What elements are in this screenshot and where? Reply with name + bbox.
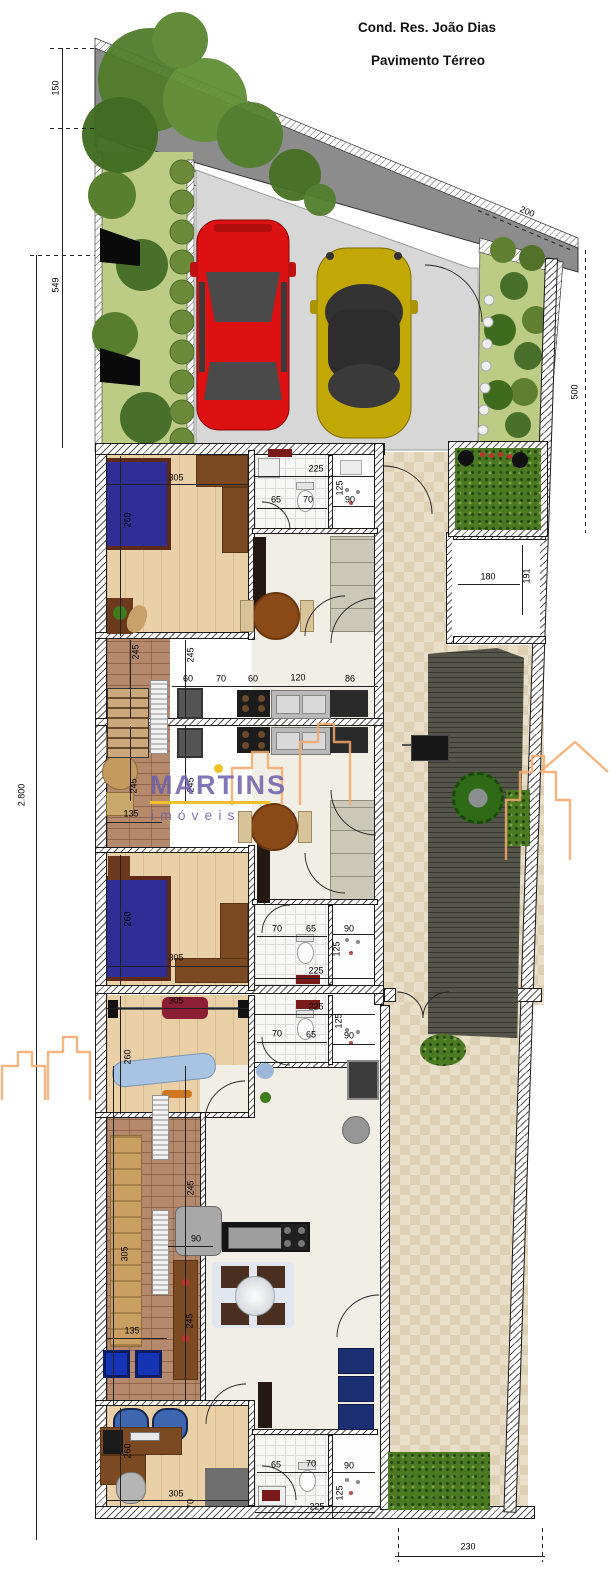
patio-a-screen xyxy=(150,680,168,754)
dimension-label: 135 xyxy=(124,1327,139,1336)
garden-table xyxy=(452,772,504,824)
watermark-brand: MARTINS xyxy=(150,772,287,799)
office-wall-right xyxy=(248,1400,255,1506)
dimension-label: 225 xyxy=(308,1003,323,1012)
service-a-fittings xyxy=(345,488,349,492)
watermark-underline xyxy=(150,801,270,804)
watermark-tagline: imóveis xyxy=(151,808,240,822)
planter-post-right xyxy=(512,452,528,468)
dimension-label: 180 xyxy=(480,573,495,582)
grill xyxy=(411,735,449,761)
dimension-label: 125 xyxy=(335,1013,344,1028)
kitchen-c-fridge xyxy=(175,1206,222,1256)
office-monitor xyxy=(130,1432,160,1441)
dim-line xyxy=(332,1462,333,1518)
bathroom-b-mat xyxy=(296,975,320,984)
dimension-label: 65 xyxy=(306,1031,316,1040)
dimension-label: 60 xyxy=(248,675,258,684)
dimension-label: 90 xyxy=(191,1235,201,1244)
dimension-label: 60 xyxy=(183,675,193,684)
planter-flowers xyxy=(480,452,485,457)
dim-line xyxy=(107,484,248,485)
dimension-label: 549 xyxy=(52,277,61,292)
kitchen-a-sink xyxy=(271,690,331,719)
dim-line xyxy=(458,584,520,585)
living-c-side-table xyxy=(342,1116,370,1144)
kitchen-a-stove xyxy=(237,690,270,717)
dim-line xyxy=(50,48,95,49)
bedroom-b-wall-right xyxy=(248,845,255,991)
dimension-label: 245 xyxy=(187,647,196,662)
dimension-label: 245 xyxy=(130,778,139,793)
dimension-label: 70 xyxy=(187,1499,196,1509)
dimension-label: 90 xyxy=(345,496,355,505)
bedroom-a-bed xyxy=(103,458,171,550)
kitchen-b-counter xyxy=(330,727,368,753)
patio-c-long-table xyxy=(110,1135,142,1347)
dim-line xyxy=(255,1512,375,1513)
bedroom-b-wall-top xyxy=(95,847,255,853)
inner-wall-right-lower xyxy=(380,1005,390,1510)
dimension-label: 90 xyxy=(344,1032,354,1041)
dim-line xyxy=(172,686,378,687)
dimension-label: 90 xyxy=(344,925,354,934)
dimension-label: 225 xyxy=(308,465,323,474)
dim-line xyxy=(120,996,121,1114)
dimension-label: 65 xyxy=(271,496,281,505)
dim-line xyxy=(332,1000,333,1062)
dim-line xyxy=(168,1246,213,1247)
dim-line xyxy=(120,1408,121,1508)
kitchen-b-sink xyxy=(271,727,331,755)
dimension-label: 230 xyxy=(460,1543,475,1552)
dim-line xyxy=(255,476,375,477)
sofa-c-module1 xyxy=(338,1348,374,1374)
service-b-fittings xyxy=(345,938,349,942)
dim-line xyxy=(395,1556,545,1557)
patio-c-chair1 xyxy=(103,1350,130,1378)
dim-line xyxy=(542,1528,543,1562)
bathroom-a-sink xyxy=(258,458,280,478)
hedge-bottom xyxy=(388,1452,490,1510)
bath-b-wall-top xyxy=(252,899,378,905)
living-c-tv-rack xyxy=(258,1382,272,1428)
storage-room xyxy=(452,540,540,636)
dimension-label: 305 xyxy=(168,954,183,963)
service-a-tub xyxy=(340,460,362,475)
sofa-c-module3 xyxy=(338,1404,374,1430)
dim-line xyxy=(333,934,375,935)
dim-line xyxy=(30,255,95,256)
bedroom-a-wardrobe2 xyxy=(222,487,248,553)
courtyard-wall-gap1 xyxy=(384,988,396,1002)
dim-line xyxy=(50,128,95,129)
storage-wall-bottom xyxy=(446,636,546,644)
dimension-label: 305 xyxy=(168,474,183,483)
exercise-plate-left xyxy=(108,1000,118,1018)
living-b-chair-right xyxy=(298,811,312,843)
dimension-label: 260 xyxy=(124,911,133,926)
dim-line xyxy=(257,936,327,937)
plan-subtitle: Pavimento Térreo xyxy=(371,53,485,68)
dim-line xyxy=(120,456,121,636)
patio-c-chair2 xyxy=(135,1350,162,1378)
office-wall-top xyxy=(95,1400,255,1406)
outer-wall-top xyxy=(95,443,385,455)
plan-title: Cond. Res. João Dias xyxy=(358,20,496,35)
dimension-label: 245 xyxy=(187,1180,196,1195)
grill-handle xyxy=(402,744,411,746)
dimension-label: 260 xyxy=(124,512,133,527)
patio-c-screen1 xyxy=(152,1095,169,1160)
dim-line xyxy=(333,506,375,507)
dim-line xyxy=(107,966,248,967)
service-c2-fittings xyxy=(345,1478,349,1482)
dimension-label: 500 xyxy=(571,384,580,399)
living-a-sofa xyxy=(330,536,376,632)
living-a-table xyxy=(252,592,300,640)
bathroom-c2-mat xyxy=(262,1490,280,1501)
dim-line xyxy=(255,1014,375,1015)
floor-plan-page: Cond. Res. João Dias Pavimento Térreo xyxy=(0,0,610,1570)
dimension-label: 225 xyxy=(309,1503,324,1512)
dimension-label: 125 xyxy=(333,941,342,956)
dining-c-table xyxy=(235,1276,275,1316)
multiroom-c-wall-right xyxy=(248,995,255,1118)
dim-line xyxy=(333,1044,375,1045)
dim-line xyxy=(36,255,37,1540)
car-yellow xyxy=(310,248,418,438)
bush-roof-end xyxy=(420,1034,466,1066)
dim-line xyxy=(398,1528,399,1562)
site-plan xyxy=(0,0,610,462)
dim-line xyxy=(332,458,333,528)
hedge-strip-right xyxy=(506,790,530,846)
dim-line xyxy=(257,1042,327,1043)
living-b-sofa xyxy=(330,800,376,900)
dim-line xyxy=(113,1066,114,1406)
dimension-label: 70 xyxy=(306,1460,316,1469)
dimension-label: 260 xyxy=(124,1443,133,1458)
stairs xyxy=(107,688,149,758)
dimension-label: 120 xyxy=(290,674,305,683)
dim-line xyxy=(255,978,375,979)
living-a-chair-left xyxy=(240,600,254,632)
dim-line xyxy=(62,48,63,128)
dimension-label: 125 xyxy=(336,480,345,495)
dimension-label: 65 xyxy=(271,1461,281,1470)
bathroom-c2-toilet xyxy=(299,1470,316,1492)
dim-line xyxy=(333,1472,375,1473)
dim-line xyxy=(107,1500,248,1501)
bedroom-b-plant-pot xyxy=(108,856,130,880)
watermark-dot xyxy=(214,764,223,773)
dimension-label: 260 xyxy=(124,1049,133,1064)
kitchen-a-counter xyxy=(330,690,368,717)
dim-line xyxy=(257,508,327,509)
dimension-label: 135 xyxy=(123,810,138,819)
dimension-label: 305 xyxy=(168,997,183,1006)
kitchen-b-stove xyxy=(237,727,270,753)
dimension-label: 70 xyxy=(303,496,313,505)
patio-c-screen2 xyxy=(152,1210,169,1295)
bedroom-b-wardrobe2 xyxy=(175,958,248,983)
service-c1-floor xyxy=(333,995,378,1065)
dimension-label: 70 xyxy=(272,1030,282,1039)
living-c-wall-unit xyxy=(347,1060,379,1100)
living-b-table xyxy=(250,803,298,851)
planter-post-left xyxy=(458,450,474,466)
dimension-label: 65 xyxy=(306,925,316,934)
dimension-label: 150 xyxy=(52,80,61,95)
car-red xyxy=(190,220,296,430)
dimension-label: 225 xyxy=(308,967,323,976)
dimension-label: 70 xyxy=(216,675,226,684)
dimension-label: 305 xyxy=(168,1490,183,1499)
dimension-label: 70 xyxy=(272,925,282,934)
kitchen-a-fridge xyxy=(177,688,203,719)
bathroom-b-toilet xyxy=(297,942,314,964)
living-a-chair-right xyxy=(300,600,314,632)
wall-unitB-unitC xyxy=(95,985,384,994)
dimension-label: 90 xyxy=(344,1462,354,1471)
kitchen-c-stove xyxy=(281,1224,308,1250)
dim-line xyxy=(257,1472,327,1473)
bath-a-wall-bottom xyxy=(252,528,378,534)
kitchen-b-fridge xyxy=(177,728,203,758)
dim-line xyxy=(585,250,586,533)
sofa-c-module2 xyxy=(338,1376,374,1402)
bathroom-a-mat xyxy=(268,449,292,457)
dim-line xyxy=(107,1008,248,1009)
dim-line xyxy=(62,128,63,448)
dimension-label: 2.800 xyxy=(18,784,27,807)
dim-line xyxy=(185,1066,186,1406)
dimension-label: 86 xyxy=(345,675,355,684)
exercise-plate-right xyxy=(238,1000,248,1018)
multiroom-c-wall-bottom xyxy=(95,1112,255,1118)
living-c-plant xyxy=(260,1092,271,1103)
living-c-pouf xyxy=(256,1063,274,1079)
dimension-label: 245 xyxy=(186,1313,195,1328)
dimension-label: 191 xyxy=(523,568,532,583)
patio-c-wall-right xyxy=(200,1112,206,1406)
dimension-label: 245 xyxy=(132,644,141,659)
dimension-label: 305 xyxy=(121,1246,130,1261)
dimension-label: 125 xyxy=(336,1485,345,1500)
dim-line xyxy=(107,1338,167,1339)
bedroom-a-wardrobe xyxy=(196,455,248,487)
